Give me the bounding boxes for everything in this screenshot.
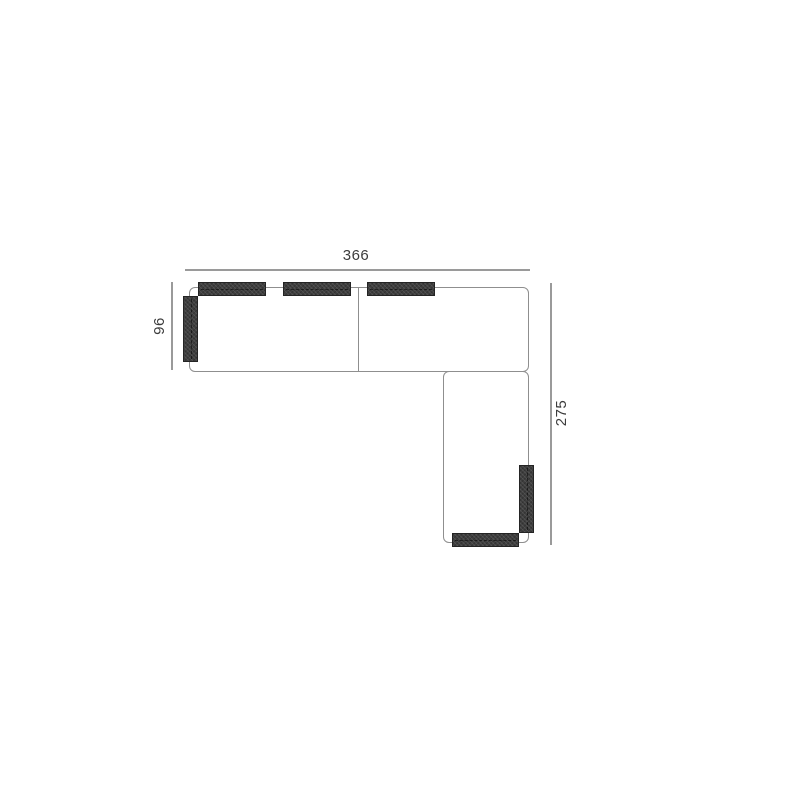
chaise-right-side-cushion [519,465,534,533]
back-cushion-1 [198,282,266,296]
sofa-chaise-outline [443,371,529,543]
left-armrest-cushion [183,296,198,362]
dimension-label-left-depth: 96 [151,286,169,366]
sofa-section-divider [358,287,359,372]
dimension-label-right-depth: 275 [553,373,571,453]
chaise-end-cushion [452,533,519,547]
dimension-line-width [185,269,530,271]
back-cushion-2 [283,282,351,296]
dimension-line-right-depth [550,283,552,545]
sofa-dimension-drawing: 366 96 275 [0,0,800,800]
sofa-body-outline [189,287,529,372]
dimension-label-width: 366 [316,247,396,265]
dimension-line-left-depth [171,282,173,370]
back-cushion-3 [367,282,435,296]
